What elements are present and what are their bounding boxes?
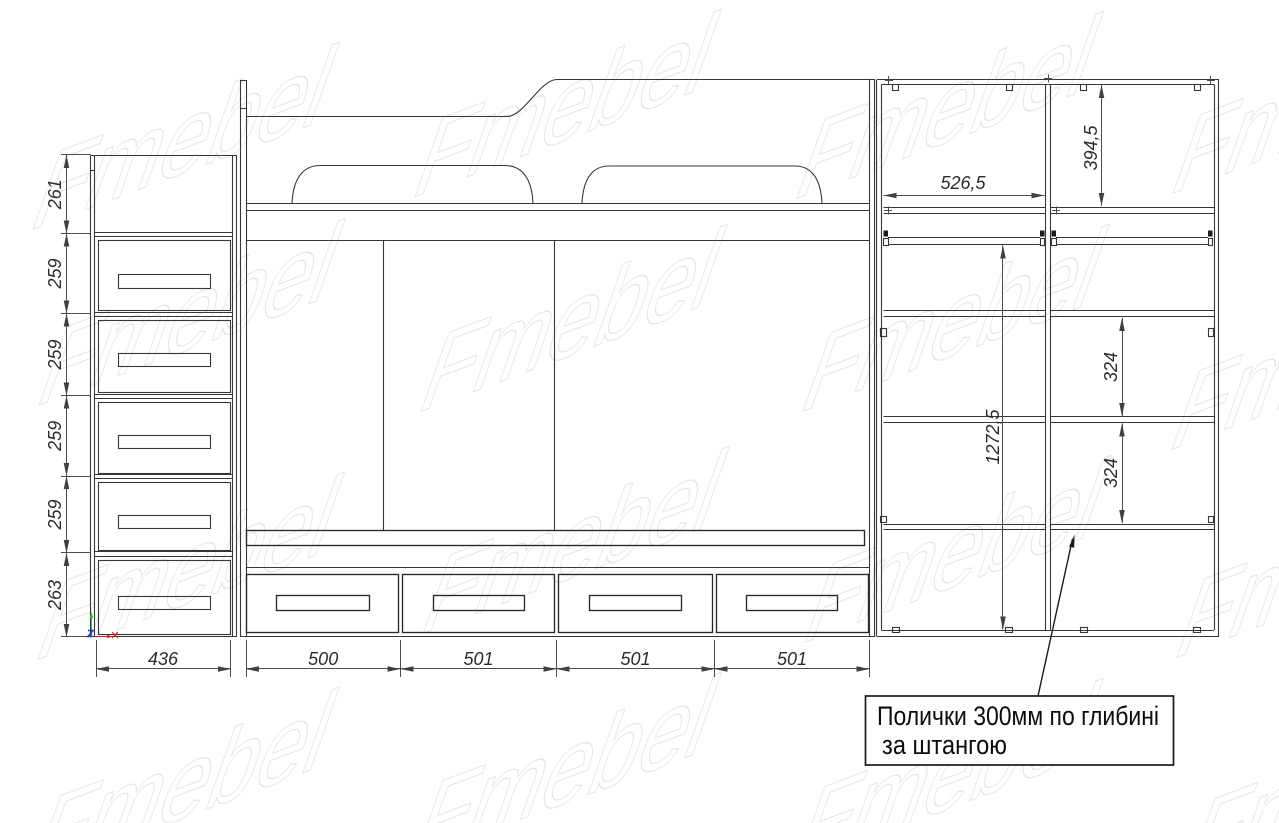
svg-text:259: 259 <box>45 499 65 530</box>
svg-text:259: 259 <box>45 421 65 452</box>
svg-text:500: 500 <box>308 649 338 669</box>
svg-text:263: 263 <box>45 580 65 611</box>
svg-text:259: 259 <box>45 258 65 289</box>
svg-text:за штангою: за штангою <box>882 730 1007 760</box>
svg-text:501: 501 <box>620 649 650 669</box>
svg-text:501: 501 <box>463 649 493 669</box>
svg-text:394,5: 394,5 <box>1081 124 1101 170</box>
svg-text:436: 436 <box>148 649 179 669</box>
svg-text:526,5: 526,5 <box>940 173 986 193</box>
svg-text:Полички 300мм по глибині: Полички 300мм по глибині <box>877 701 1159 731</box>
svg-text:261: 261 <box>45 179 65 210</box>
svg-text:1272,5: 1272,5 <box>983 408 1003 464</box>
svg-text:259: 259 <box>45 339 65 370</box>
svg-text:501: 501 <box>777 649 807 669</box>
svg-text:324: 324 <box>1101 458 1121 488</box>
svg-text:324: 324 <box>1101 352 1121 382</box>
